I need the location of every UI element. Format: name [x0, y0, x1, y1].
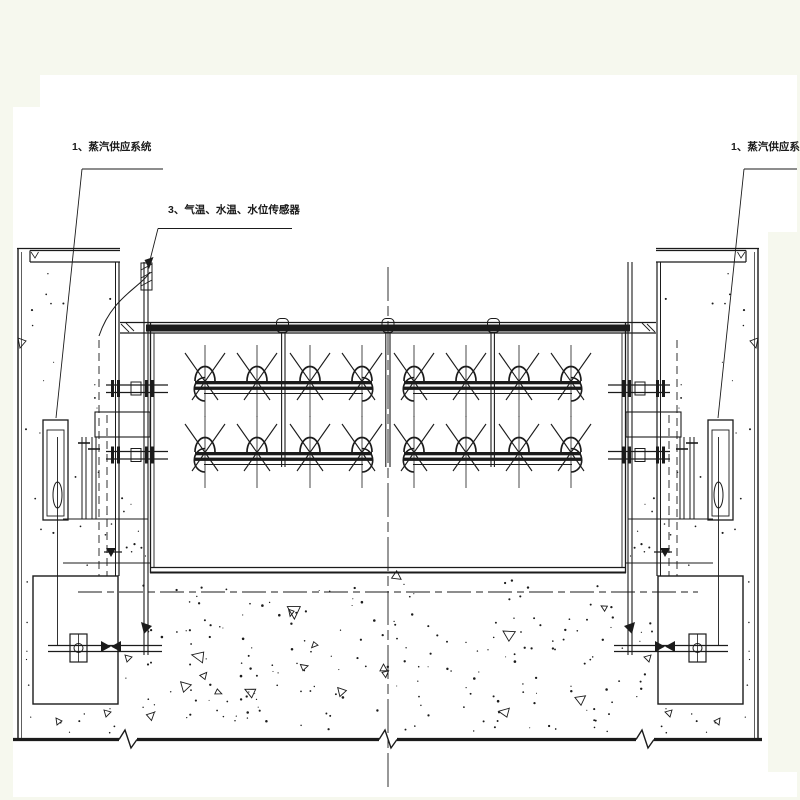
cad-drawing-canvas: 1、蒸汽供应系统 3、气温、水温、水位传感器 1、蒸汽供应系统	[0, 0, 800, 800]
margin-right-strip	[768, 232, 800, 772]
label-steam-supply-left: 1、蒸汽供应系统	[72, 140, 152, 153]
label-sensors: 3、气温、水温、水位传感器	[168, 203, 300, 216]
cad-drawing-page: 1、蒸汽供应系统 3、气温、水温、水位传感器 1、蒸汽供应系统	[0, 0, 800, 800]
label-steam-supply-right: 1、蒸汽供应系统	[731, 140, 800, 153]
margin-notch	[13, 75, 40, 107]
